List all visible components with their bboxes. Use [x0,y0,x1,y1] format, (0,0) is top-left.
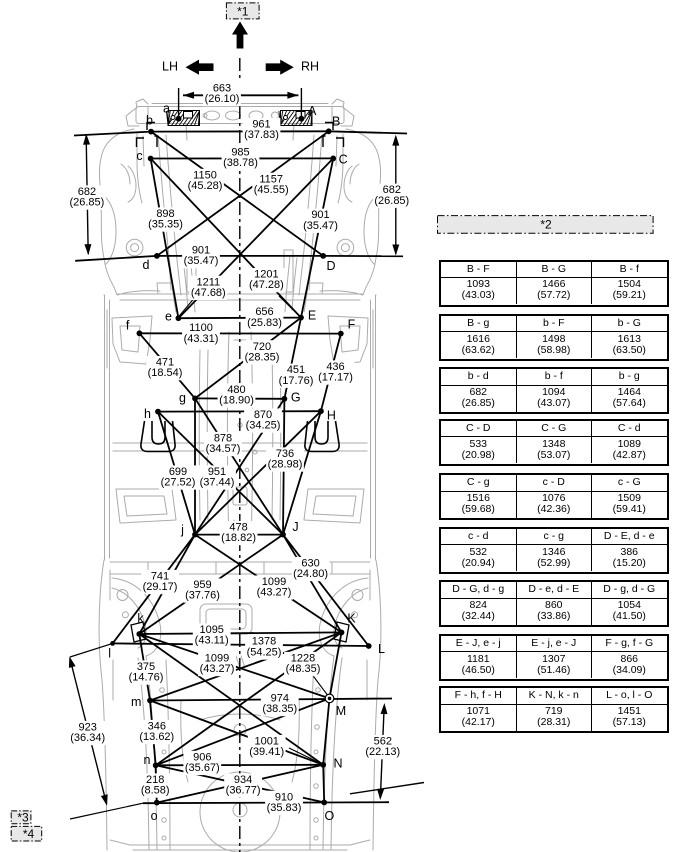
svg-text:(29.17): (29.17) [143,581,178,593]
svg-text:J: J [292,520,298,534]
svg-text:(27.52): (27.52) [161,477,196,489]
svg-text:C: C [339,153,348,167]
svg-text:F: F [348,317,356,331]
svg-text:G: G [291,390,301,404]
svg-text:(26.10): (26.10) [205,93,240,105]
svg-text:(48.35): (48.35) [286,663,321,675]
svg-text:(28.35): (28.35) [245,351,280,363]
svg-text:n: n [144,753,151,767]
svg-text:j: j [180,523,184,537]
svg-text:(17.76): (17.76) [279,375,314,387]
svg-text:O: O [325,809,335,823]
svg-text:k: k [137,612,144,626]
svg-text:d: d [143,258,150,272]
svg-text:(43.11): (43.11) [195,635,229,647]
svg-text:c: c [136,149,142,163]
svg-text:(38.78): (38.78) [223,157,258,169]
svg-text:(17.17): (17.17) [318,372,353,384]
svg-text:(35.83): (35.83) [267,802,302,814]
svg-text:A: A [308,104,317,118]
svg-text:(18.82): (18.82) [221,532,256,544]
svg-text:LH: LH [162,59,178,73]
svg-text:(14.76): (14.76) [129,672,164,684]
svg-text:(38.35): (38.35) [262,703,297,715]
svg-text:(26.85): (26.85) [69,197,104,209]
svg-text:(26.85): (26.85) [374,195,409,207]
svg-text:(18.90): (18.90) [219,395,254,407]
svg-text:RH: RH [301,59,319,73]
svg-text:(36.34): (36.34) [70,732,105,744]
svg-text:(36.77): (36.77) [226,785,261,797]
svg-text:(35.35): (35.35) [148,219,183,231]
svg-text:(54.25): (54.25) [247,647,282,659]
svg-text:K: K [347,612,356,626]
svg-text:(22.13): (22.13) [365,746,400,758]
svg-text:g: g [179,391,186,405]
svg-text:a: a [163,101,170,115]
svg-text:(13.62): (13.62) [139,731,174,743]
svg-text:(35.47): (35.47) [303,220,338,232]
svg-text:D: D [326,259,335,273]
svg-text:*1: *1 [237,4,249,18]
svg-text:(43.27): (43.27) [200,663,235,675]
svg-text:L: L [378,642,385,656]
svg-text:(47.68): (47.68) [191,287,226,299]
svg-text:m: m [131,695,141,709]
svg-text:b: b [146,114,153,128]
svg-text:(37.44): (37.44) [200,477,235,489]
svg-text:(39.41): (39.41) [249,746,284,758]
svg-text:(45.28): (45.28) [188,180,223,192]
svg-text:h: h [144,407,151,421]
svg-text:o: o [151,809,158,823]
svg-text:(37.76): (37.76) [185,590,220,602]
svg-text:f: f [126,319,130,333]
svg-text:(8.58): (8.58) [141,785,170,797]
svg-text:(35.67): (35.67) [185,762,220,774]
svg-text:e: e [165,310,172,324]
svg-text:*3: *3 [17,811,29,825]
svg-text:(43.31): (43.31) [184,333,219,345]
svg-text:(37.83): (37.83) [244,129,279,141]
svg-text:(47.28): (47.28) [249,279,284,291]
svg-text:(18.54): (18.54) [148,367,183,379]
svg-text:(35.47): (35.47) [184,255,219,267]
svg-text:(43.27): (43.27) [257,587,292,599]
svg-text:M: M [336,704,346,718]
svg-text:(28.98): (28.98) [268,459,303,471]
svg-text:N: N [333,756,342,770]
svg-text:H: H [327,408,336,422]
svg-text:*4: *4 [23,827,35,841]
svg-text:(34.25): (34.25) [246,420,281,432]
svg-text:(25.83): (25.83) [247,317,282,329]
svg-text:(24.80): (24.80) [293,568,328,580]
svg-text:B: B [332,115,340,129]
svg-text:(45.55): (45.55) [254,184,289,196]
svg-text:(34.57): (34.57) [206,443,241,455]
svg-text:E: E [308,308,316,322]
svg-text:l: l [108,647,111,661]
